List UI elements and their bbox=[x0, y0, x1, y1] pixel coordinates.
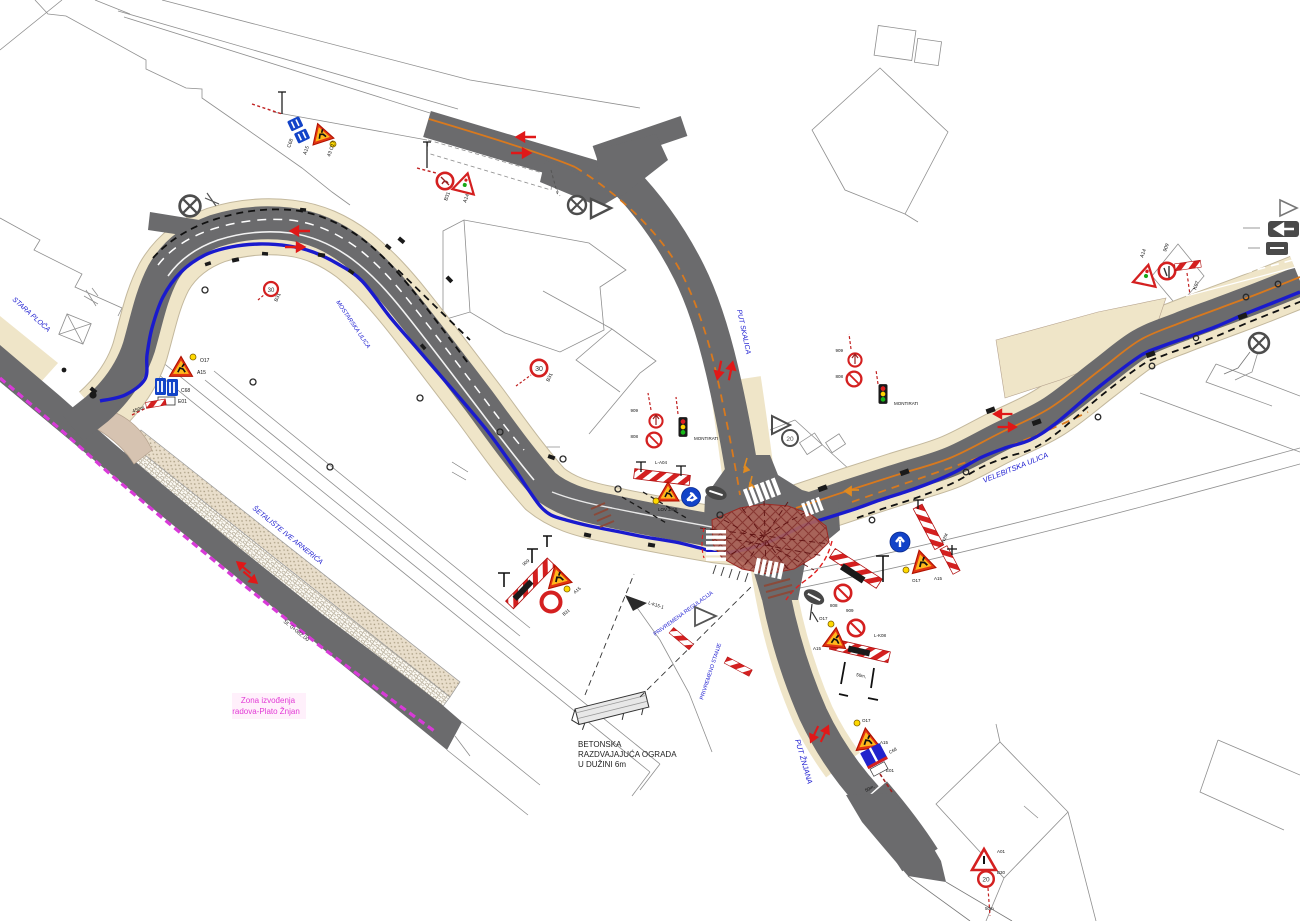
svg-text:909: 909 bbox=[846, 608, 854, 613]
svg-text:808: 808 bbox=[630, 434, 638, 439]
svg-text:A15: A15 bbox=[197, 370, 206, 376]
svg-text:A15: A15 bbox=[880, 740, 889, 745]
svg-text:MONTIRATI: MONTIRATI bbox=[894, 401, 918, 406]
svg-text:A15: A15 bbox=[813, 646, 822, 651]
svg-text:U DUŽINI 6m: U DUŽINI 6m bbox=[578, 760, 626, 769]
svg-text:20: 20 bbox=[982, 877, 990, 884]
svg-text:50m: 50m bbox=[985, 906, 994, 911]
svg-text:A15: A15 bbox=[934, 576, 943, 581]
svg-text:O17: O17 bbox=[819, 616, 828, 621]
svg-text:20: 20 bbox=[786, 436, 794, 443]
svg-text:B30: B30 bbox=[997, 870, 1006, 875]
svg-text:radova-Plato Žnjan: radova-Plato Žnjan bbox=[232, 707, 300, 716]
svg-text:808: 808 bbox=[835, 374, 843, 379]
svg-text:C68: C68 bbox=[181, 388, 190, 394]
svg-text:L-K08: L-K08 bbox=[874, 633, 887, 638]
svg-text:A01: A01 bbox=[997, 849, 1006, 854]
svg-text:Zona izvođenja: Zona izvođenja bbox=[241, 696, 296, 705]
svg-text:L-A04: L-A04 bbox=[655, 460, 668, 465]
svg-text:MONTIRATI: MONTIRATI bbox=[694, 436, 718, 441]
svg-text:909: 909 bbox=[630, 408, 638, 413]
svg-text:LOV 2/9S: LOV 2/9S bbox=[658, 507, 678, 512]
svg-text:RAZDVAJAJUĆA OGRADA: RAZDVAJAJUĆA OGRADA bbox=[578, 750, 677, 759]
svg-text:O17: O17 bbox=[912, 578, 921, 583]
svg-text:30: 30 bbox=[535, 366, 543, 373]
svg-text:909: 909 bbox=[835, 348, 843, 353]
svg-text:E01: E01 bbox=[886, 768, 895, 773]
svg-text:E01: E01 bbox=[178, 399, 187, 405]
svg-text:30: 30 bbox=[268, 288, 275, 294]
svg-text:O17: O17 bbox=[862, 718, 871, 723]
svg-text:BETONSKA: BETONSKA bbox=[578, 740, 622, 749]
svg-text:O17: O17 bbox=[200, 358, 210, 364]
svg-text:808: 808 bbox=[830, 603, 838, 608]
